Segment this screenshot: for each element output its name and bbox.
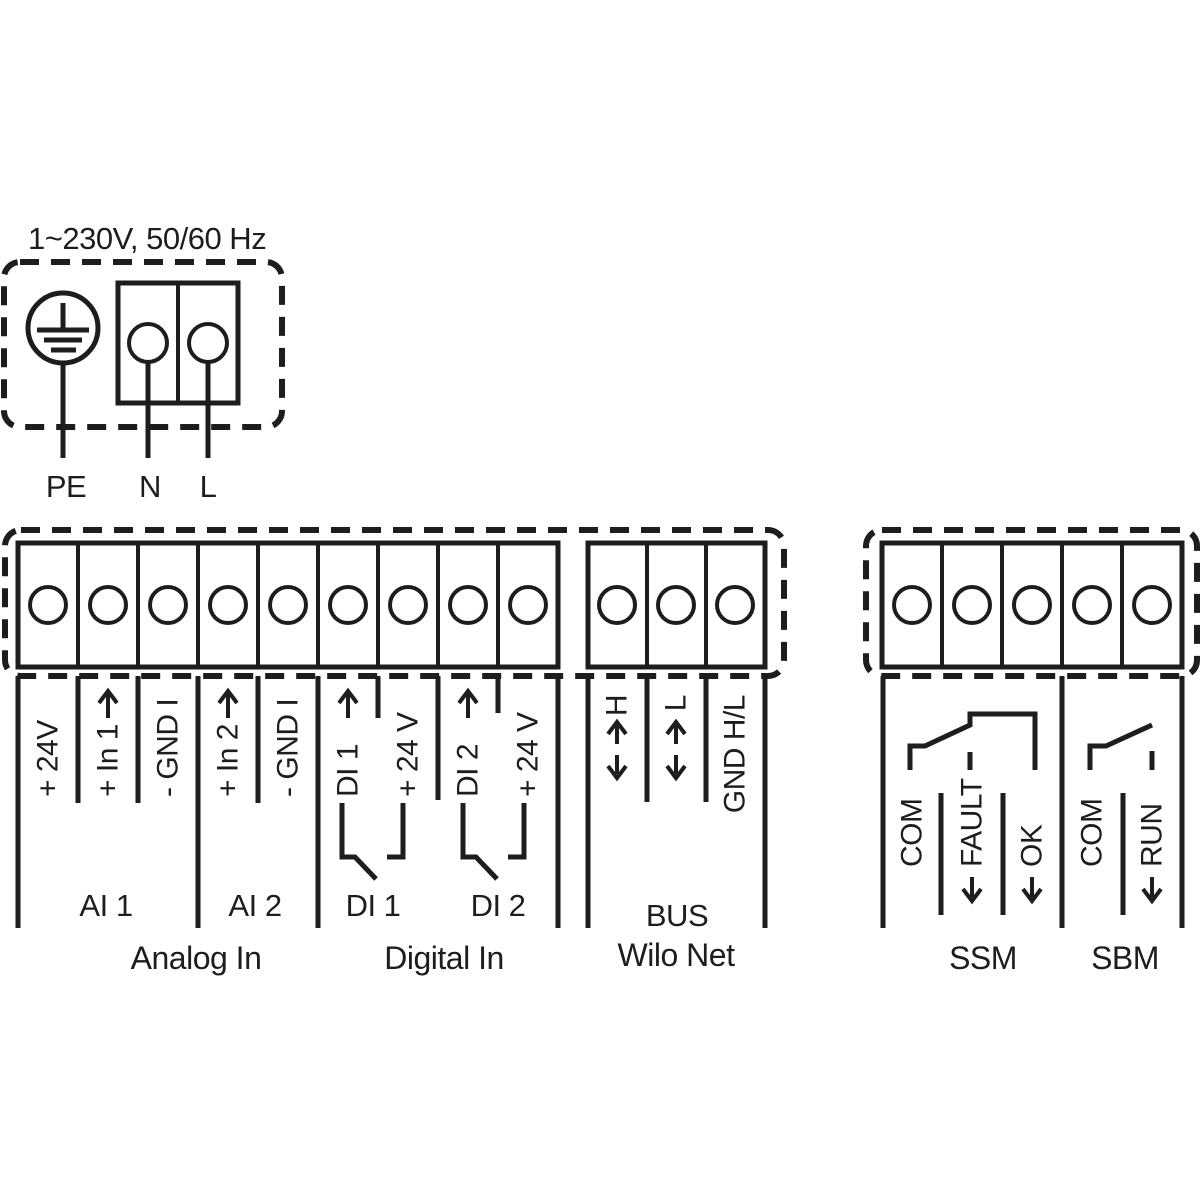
terminal-label: L — [660, 695, 693, 711]
relay-block-outline — [882, 543, 1182, 667]
group-label-di2: DI 2 — [471, 888, 526, 923]
terminal-label: + In 1 — [92, 724, 125, 797]
io-terminal-block — [18, 543, 558, 667]
pe-earth-icon — [28, 293, 98, 363]
terminal-label: COM — [896, 799, 929, 868]
terminal-circle — [30, 587, 66, 623]
terminal-circle — [1014, 587, 1050, 623]
terminal-label: H — [601, 695, 634, 716]
terminal-circle — [510, 587, 546, 623]
relay-changeover-contact-icon — [910, 714, 1035, 770]
terminal-label: + 24 V — [512, 712, 545, 797]
terminal-circle — [90, 587, 126, 623]
up-arrow-icon — [667, 722, 685, 744]
power-title: 1~230V, 50/60 Hz — [28, 221, 266, 256]
switch-contact-icon — [342, 803, 403, 879]
terminal-circle — [894, 587, 930, 623]
down-arrow-icon — [1023, 877, 1041, 901]
up-arrow-icon — [219, 691, 237, 718]
io-block-outline — [18, 543, 558, 667]
terminal-label: GND H/L — [719, 695, 752, 813]
down-arrow-icon — [667, 755, 685, 778]
terminal-circle — [658, 587, 694, 623]
section-label-ssm: SSM — [949, 940, 1017, 976]
bus-terminal-block — [588, 543, 765, 667]
terminal-circle — [599, 587, 635, 623]
down-arrow-icon — [608, 755, 626, 778]
section-label-wilo-net: Wilo Net — [618, 937, 736, 973]
terminal-circle — [270, 587, 306, 623]
power-terminal-block — [118, 283, 238, 403]
terminal-circle — [450, 587, 486, 623]
relay-contact-icon — [1090, 725, 1152, 770]
wiring-diagram: 1~230V, 50/60 Hz PE N L — [0, 0, 1200, 1200]
terminal-circle — [330, 587, 366, 623]
terminal-label: - GND I — [152, 699, 185, 797]
terminal-label: DI 1 — [332, 744, 365, 797]
power-section: 1~230V, 50/60 Hz PE N L — [4, 221, 282, 504]
wiring-diagram-canvas: 1~230V, 50/60 Hz PE N L — [0, 0, 1200, 1200]
up-arrow-icon — [608, 722, 626, 744]
l-label: L — [200, 469, 217, 504]
terminal-label: FAULT — [956, 778, 989, 867]
terminal-label: RUN — [1136, 804, 1169, 868]
section-label-analog-in: Analog In — [131, 940, 262, 976]
bus-block-outline — [588, 543, 765, 667]
group-label-di1: DI 1 — [346, 888, 401, 923]
io-dashed-box — [5, 530, 784, 676]
up-arrow-icon — [99, 691, 117, 718]
switch-contact-icon — [463, 803, 524, 879]
terminal-circle — [1134, 587, 1170, 623]
terminal-circle — [954, 587, 990, 623]
terminal-circle — [717, 587, 753, 623]
terminal-label: COM — [1076, 799, 1109, 868]
pe-label: PE — [46, 469, 86, 504]
group-label-bus: BUS — [646, 898, 708, 933]
section-label-digital-in: Digital In — [384, 940, 504, 976]
up-arrow-icon — [339, 691, 357, 718]
terminal-circle — [189, 324, 227, 362]
terminal-label: + 24 V — [392, 712, 425, 797]
relay-terminal-strip: COM FAULT OK COM RUN SSM SBM — [866, 530, 1197, 976]
section-label-sbm: SBM — [1091, 940, 1159, 976]
group-label-ai1: AI 1 — [79, 888, 132, 923]
terminal-label: + 24V — [32, 720, 65, 797]
down-arrow-icon — [1143, 877, 1161, 901]
relay-terminal-block — [882, 543, 1182, 667]
io-terminal-strip: + 24V + In 1 - GND I + In 2 - GND I DI 1… — [5, 530, 784, 976]
terminal-label: - GND I — [272, 699, 305, 797]
terminal-label: + In 2 — [212, 724, 245, 797]
terminal-circle — [210, 587, 246, 623]
n-label: N — [139, 469, 161, 504]
group-label-ai2: AI 2 — [228, 888, 281, 923]
down-arrow-icon — [963, 877, 981, 901]
terminal-label: OK — [1016, 824, 1049, 867]
terminal-circle — [129, 324, 167, 362]
relay-dashed-box — [866, 530, 1197, 676]
up-arrow-icon — [459, 691, 477, 718]
terminal-circle — [390, 587, 426, 623]
terminal-label: DI 2 — [452, 744, 485, 797]
terminal-circle — [150, 587, 186, 623]
terminal-circle — [1074, 587, 1110, 623]
